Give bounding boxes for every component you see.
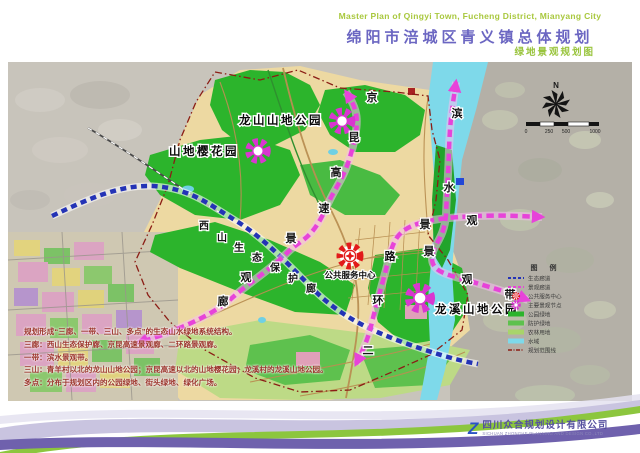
corridor-char: 景 <box>419 218 431 231</box>
corridor-char: 水 <box>444 180 456 194</box>
corridor-char: 速 <box>319 201 330 215</box>
corridor-char: 保 <box>269 261 281 274</box>
legend-label: 公园绿地 <box>528 311 551 319</box>
legend-label: 规划范围线 <box>528 347 556 355</box>
corridor-char: 廊 <box>306 282 316 295</box>
corridor-char: 西 <box>199 220 209 232</box>
legend-label: 景观廊道 <box>528 284 551 292</box>
note-line: 三山：青羊村以北的龙山山地公园；京昆高速以北的山地樱花园；龙溪村的龙溪山地公园。 <box>24 364 328 377</box>
note-line: 三廊：西山生态保护廊、京昆高速景观廊、二环路景观廊。 <box>24 339 328 352</box>
legend-label: 公共服务中心 <box>528 293 562 301</box>
service-center-icon <box>340 246 361 267</box>
corridor-char: 高 <box>331 165 342 179</box>
corridor-char: 护 <box>288 272 298 285</box>
corridor-char: 昆 <box>349 131 360 144</box>
scale-tick: 1000 <box>589 129 600 135</box>
label-longxi-park: 龙溪山地公园 <box>434 302 519 316</box>
corridor-char: 态 <box>252 251 262 264</box>
corridor-char: 京 <box>367 90 378 104</box>
legend-label: 农林用地 <box>528 329 551 337</box>
note-line: 规划形成“三廊、一带、三山、多点”的生态山水绿地系统结构。 <box>24 326 328 339</box>
label-service-center: 公共服务中心 <box>324 270 376 280</box>
water-feature-marker <box>456 178 464 185</box>
logo-z-icon: Z <box>468 420 478 437</box>
note-line: 一带：滨水景观带。 <box>24 352 328 365</box>
scale-tick: 500 <box>562 129 571 135</box>
legend-symbol-farm-forest <box>508 330 524 335</box>
corridor-char: 二 <box>363 345 374 357</box>
corridor-char: 滨 <box>452 106 463 120</box>
corridor-char: 路 <box>385 249 397 263</box>
scale-tick: 0 <box>525 129 528 135</box>
corridor-char: 廊 <box>218 294 229 308</box>
plan-structure-notes: 规划形成“三廊、一带、三山、多点”的生态山水绿地系统结构。 三廊：西山生态保护廊… <box>24 326 328 390</box>
corridor-char: 环 <box>373 294 384 307</box>
scale-tick: 250 <box>545 129 554 135</box>
legend-label: 生态廊道 <box>528 275 551 283</box>
title-english: Master Plan of Qingyi Town, Fucheng Dist… <box>300 11 640 21</box>
label-longshan-park: 龙山山地公园 <box>238 113 323 127</box>
corridor-char: 观 <box>462 273 473 286</box>
legend-title: 图 例 <box>531 263 562 272</box>
plan-sheet: Master Plan of Qingyi Town, Fucheng Dist… <box>0 0 640 453</box>
map-subtitle: 绿地景观规划图 <box>470 44 595 58</box>
company-logo: Z 四川众合规划设计有限公司 SICHUAN ZHONGHE PLANNING … <box>468 420 608 437</box>
legend-label: 主要景观节点 <box>528 302 562 310</box>
company-name-english: SICHUAN ZHONGHE PLANNING AND DESIGN CO.,… <box>482 431 608 437</box>
corridor-char: 景 <box>285 232 297 245</box>
legend-symbol-park-green <box>508 312 524 317</box>
corridor-char: 生 <box>234 241 244 254</box>
corridor-char: 观 <box>467 214 478 227</box>
legend-label: 水域 <box>528 338 540 346</box>
company-name: 四川众合规划设计有限公司 <box>482 420 608 431</box>
note-line: 多点：分布于规划区内的公园绿地、街头绿地、绿化广场。 <box>24 377 328 390</box>
corridor-char: 景 <box>423 245 435 258</box>
label-cherry-garden: 山地樱花园 <box>169 144 239 158</box>
corridor-char: 观 <box>241 271 252 284</box>
legend-symbol-water <box>508 339 524 344</box>
legend-symbol-buffer-green <box>508 321 524 326</box>
corridor-char: 山 <box>217 231 227 244</box>
legend-label: 防护绿地 <box>528 320 551 328</box>
north-label: N <box>553 81 559 90</box>
legend-symbol-service-center <box>513 293 519 299</box>
